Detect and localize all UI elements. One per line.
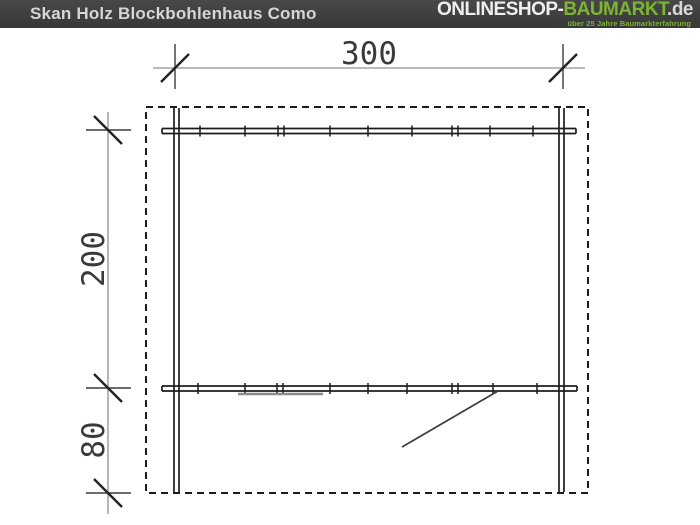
back-wall-joint-ticks (200, 126, 533, 137)
logo-part-baumarkt: BAUMARKT (563, 0, 667, 20)
front-wall-joint-ticks (198, 383, 537, 394)
logo-part-onlineshop: ONLINESHOP- (437, 0, 563, 20)
door-swing-line (402, 391, 498, 447)
page: { "header": { "title": "Skan Holz Blockb… (0, 0, 700, 525)
dimension-label-porch-depth: 80 (76, 421, 112, 458)
roof-outline-dashed (146, 107, 588, 493)
dimension-label-width: 300 (341, 36, 397, 72)
logo-tagline: über 25 Jahre Baumarkterfahrung (437, 20, 693, 28)
shop-logo-text: ONLINESHOP-BAUMARKT.de (437, 0, 693, 19)
product-title: Skan Holz Blockbohlenhaus Como (0, 4, 317, 24)
header-bar: Skan Holz Blockbohlenhaus Como ONLINESHO… (0, 0, 700, 28)
dimension-label-depth: 200 (76, 231, 112, 287)
dimension-width: 300 (153, 36, 585, 89)
walls (162, 108, 577, 492)
logo-part-de: .de (667, 0, 693, 20)
shop-logo: ONLINESHOP-BAUMARKT.de über 25 Jahre Bau… (437, 0, 700, 28)
dimension-depth: 200 80 (76, 112, 131, 514)
floor-plan-drawing: 300 200 80 (0, 28, 700, 525)
